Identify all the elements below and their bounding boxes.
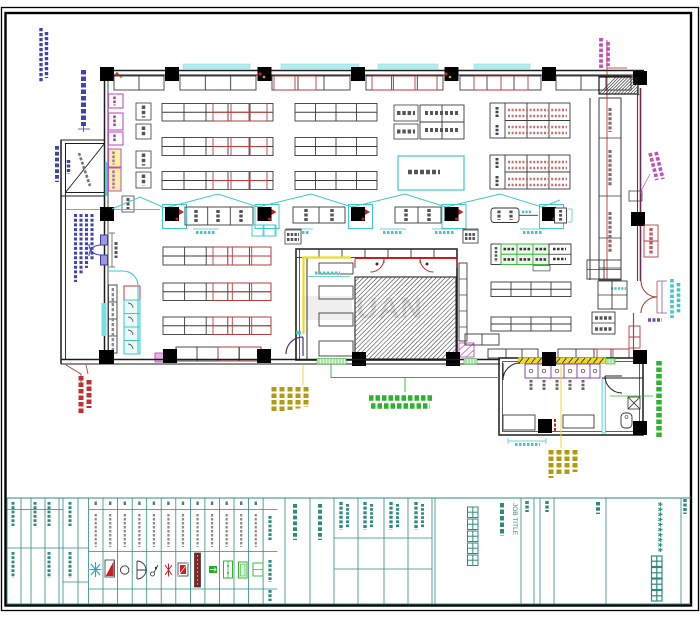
svg-text:JOB TITLE: JOB TITLE (511, 503, 518, 536)
svg-text:**********: ********** (651, 502, 663, 553)
